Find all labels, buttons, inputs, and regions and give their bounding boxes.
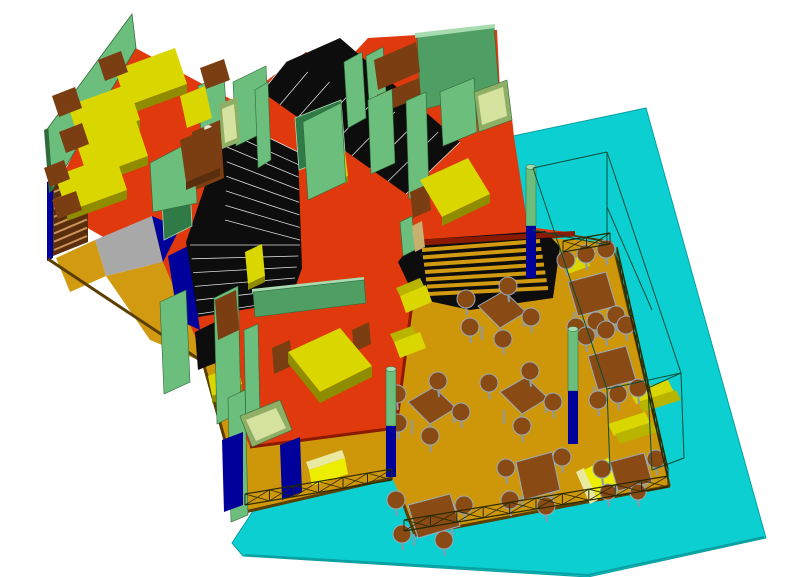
stool	[593, 460, 611, 478]
stool	[457, 290, 475, 308]
support-post	[568, 391, 578, 444]
wall-panel	[255, 82, 271, 168]
stool	[589, 391, 607, 409]
support-post	[526, 226, 536, 278]
stool	[522, 308, 540, 326]
stool	[597, 321, 615, 339]
support-post	[526, 167, 536, 226]
lower-wall-blue	[222, 432, 243, 512]
stool	[387, 491, 405, 509]
support-post	[386, 369, 396, 426]
support-post-cap	[386, 367, 396, 372]
support-post-cap	[526, 165, 536, 170]
3d-model-viewport	[0, 0, 800, 577]
stool	[553, 448, 571, 466]
stool	[480, 374, 498, 392]
wall-panel	[160, 290, 190, 394]
stool	[461, 318, 479, 336]
support-post	[568, 329, 578, 391]
stool	[521, 362, 539, 380]
stool	[435, 531, 453, 549]
wall-panel	[344, 52, 366, 128]
stool	[421, 427, 439, 445]
stool	[544, 393, 562, 411]
stool	[452, 403, 470, 421]
stool	[494, 330, 512, 348]
stool	[629, 379, 647, 397]
wall-panel	[368, 89, 395, 174]
model-render	[0, 0, 800, 577]
stool	[513, 417, 531, 435]
lower-wall-blue	[280, 437, 302, 500]
stool	[577, 327, 595, 345]
stool	[393, 525, 411, 543]
support-post-cap	[568, 327, 578, 332]
stool	[429, 372, 447, 390]
wall-panel	[400, 216, 415, 256]
stool	[497, 459, 515, 477]
stool	[499, 277, 517, 295]
